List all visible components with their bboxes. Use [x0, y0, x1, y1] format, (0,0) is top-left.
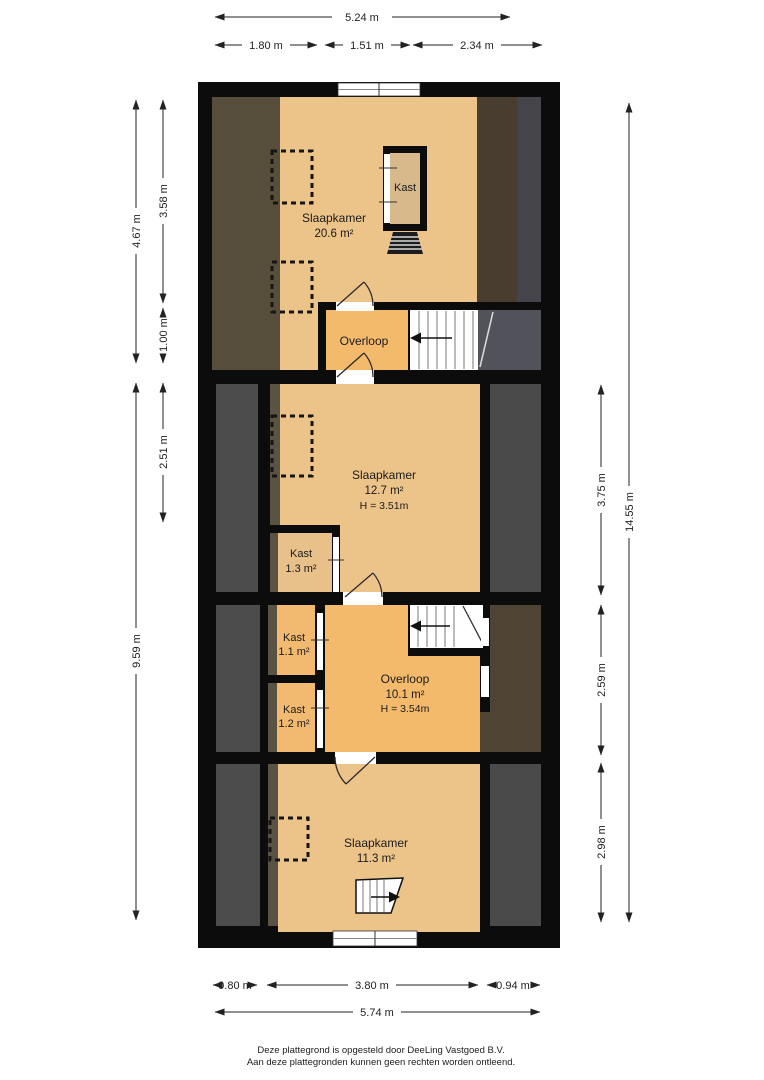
bedroom2-height: H = 3.51m: [360, 500, 409, 512]
dim-bottom-seg2: 3.80 m: [355, 980, 389, 992]
footer-line2: Aan deze plattegronden kunnen geen recht…: [247, 1057, 515, 1068]
closet-top-name: Kast: [394, 182, 416, 194]
dim-right-outer: 14.55 m: [624, 492, 636, 532]
closet-door: [333, 537, 339, 592]
floor-plan-page: Slaapkamer 20.6 m² Kast Overloop Slaapka…: [0, 0, 764, 1080]
dim-bottom-seg3: 0.94 m: [496, 980, 530, 992]
dim-left-inner-mid: 1.00 m: [158, 318, 170, 352]
wall-opening: [481, 618, 489, 646]
dim-right-inner-top: 3.75 m: [596, 473, 608, 507]
dim-bottom-seg1: 0.80 m: [218, 980, 252, 992]
dim-left-outer-top: 4.67 m: [131, 214, 143, 248]
footer: Deze plattegrond is opgesteld door DeeLi…: [247, 1045, 515, 1068]
landing-top-name: Overloop: [340, 334, 389, 348]
closet-13-name: Kast: [290, 548, 312, 560]
landing-main-area: 10.1 m²: [386, 689, 425, 701]
dim-bottom-total: 5.74 m: [360, 1007, 394, 1019]
dimensions-top: 5.24 m 1.80 m 1.51 m 2.34 m: [215, 12, 542, 52]
bedroom2-name: Slaapkamer: [352, 468, 416, 482]
bedroom1-name: Slaapkamer: [302, 211, 366, 225]
bedroom1-area: 20.6 m²: [315, 228, 354, 240]
closet-11-name: Kast: [283, 632, 305, 644]
closet-door: [317, 690, 323, 748]
landing-main-name: Overloop: [381, 672, 430, 686]
dim-right-inner-mid: 2.59 m: [596, 663, 608, 697]
footer-line1: Deze plattegrond is opgesteld door DeeLi…: [257, 1045, 504, 1056]
dimensions-bottom: 0.80 m 3.80 m 0.94 m 5.74 m: [213, 980, 540, 1019]
closet-13-area: 1.3 m²: [285, 563, 317, 575]
dim-top-seg1: 1.80 m: [249, 40, 283, 52]
landing-main-height: H = 3.54m: [381, 703, 430, 715]
dim-left-inner-top: 3.58 m: [158, 184, 170, 218]
bedroom2-area: 12.7 m²: [365, 485, 404, 497]
closet-door: [317, 613, 323, 670]
dim-right-inner-bottom: 2.98 m: [596, 825, 608, 859]
dim-left-outer-bottom: 9.59 m: [131, 634, 143, 668]
bedroom3-name: Slaapkamer: [344, 836, 408, 850]
wall-opening: [481, 666, 489, 697]
dim-left-inner-bottom: 2.51 m: [158, 435, 170, 469]
window-top: [338, 83, 420, 96]
dimensions-left: 4.67 m 3.58 m 1.00 m 9.59 m 2.51 m: [131, 100, 170, 920]
closet-12-area: 1.2 m²: [278, 718, 310, 730]
closet-12-name: Kast: [283, 704, 305, 716]
dim-top-total: 5.24 m: [345, 12, 379, 24]
dim-top-seg2: 1.51 m: [350, 40, 384, 52]
closet-11-area: 1.1 m²: [278, 646, 310, 658]
bedroom3-area: 11.3 m²: [357, 853, 395, 865]
closet-door: [384, 154, 390, 223]
window-bottom: [333, 931, 417, 946]
floor-plan-drawing: Slaapkamer 20.6 m² Kast Overloop Slaapka…: [0, 0, 764, 1080]
dimensions-right: 3.75 m 2.59 m 2.98 m 14.55 m: [596, 103, 636, 922]
attic-ladder-icon: [387, 232, 423, 254]
dim-top-seg3: 2.34 m: [460, 40, 494, 52]
